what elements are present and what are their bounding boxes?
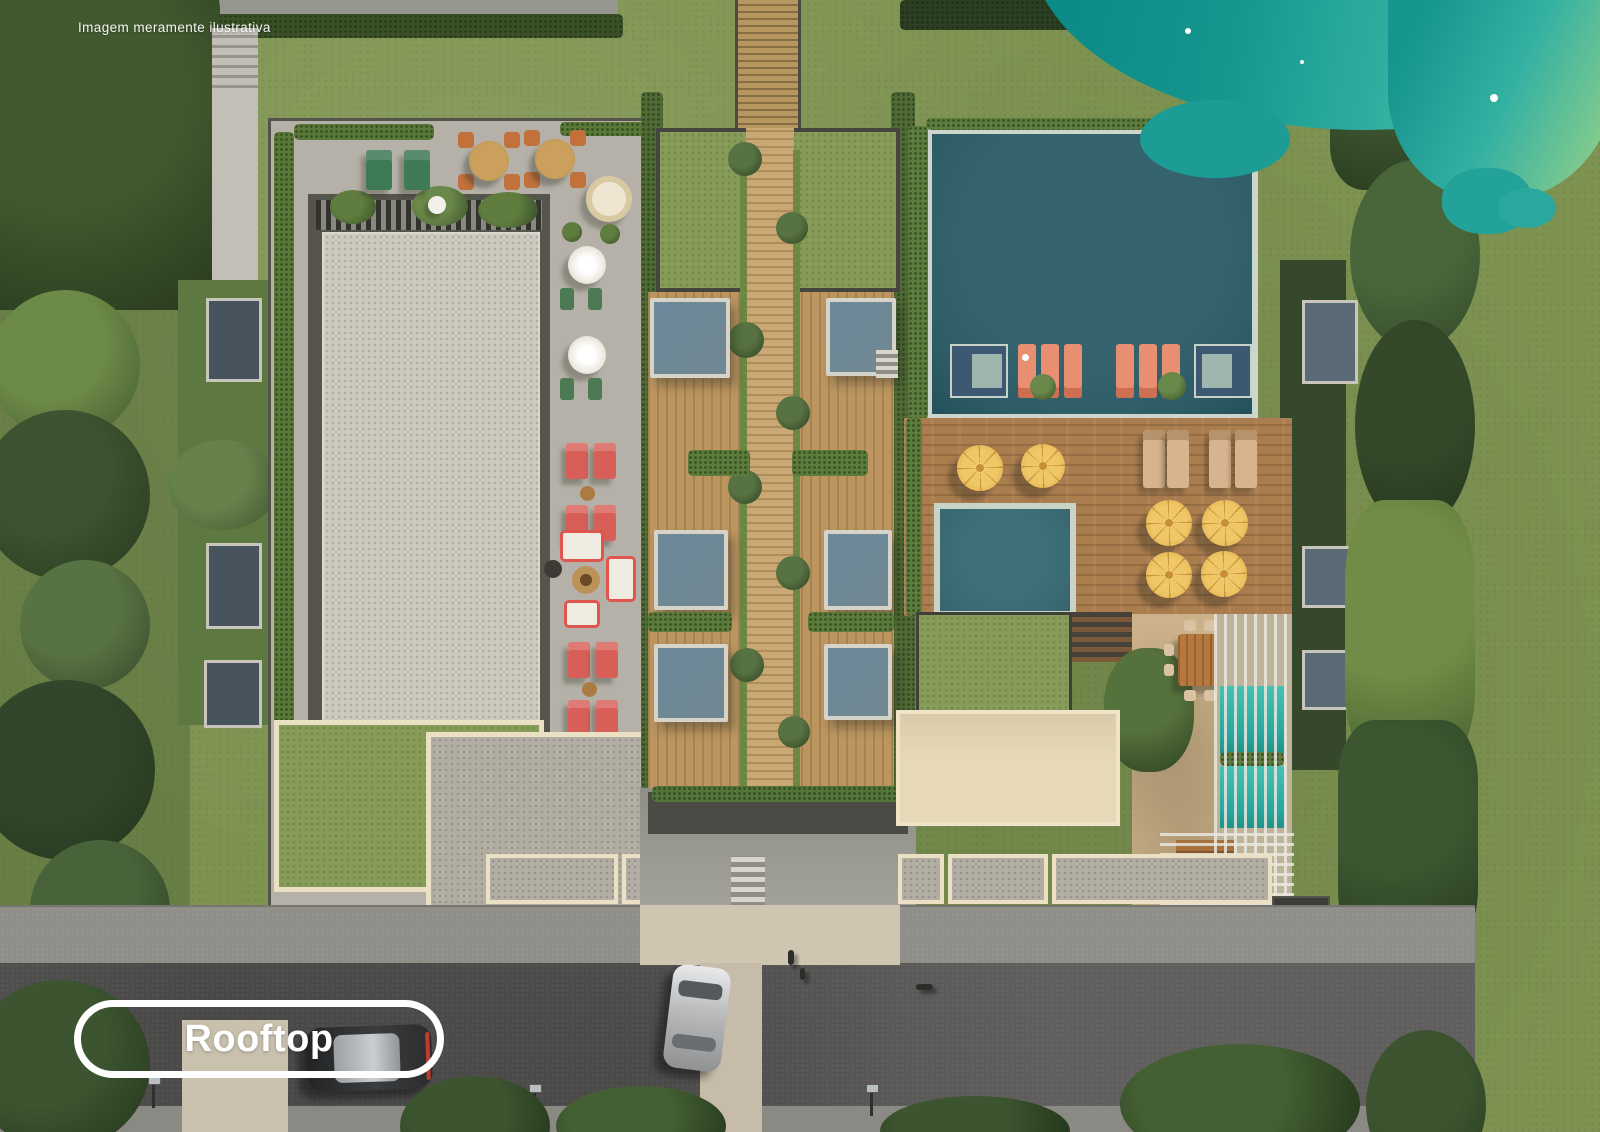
green-chair bbox=[588, 288, 602, 310]
skylight-panel bbox=[206, 543, 262, 629]
tan-lounger bbox=[1235, 430, 1257, 488]
green-chair bbox=[588, 378, 602, 400]
red-lounger bbox=[594, 443, 616, 479]
plunge-pool bbox=[940, 509, 1070, 611]
white-umbrella bbox=[568, 246, 606, 284]
unit-divider-hedge bbox=[808, 612, 894, 632]
walkway-palm bbox=[776, 212, 808, 244]
unit-plunge-daybed bbox=[650, 298, 730, 378]
tree-cluster bbox=[20, 560, 150, 690]
planter bbox=[562, 222, 582, 242]
tan-lounger bbox=[1143, 430, 1165, 488]
unit-steps bbox=[876, 350, 898, 378]
walkway-palm bbox=[778, 716, 810, 748]
pool-plant bbox=[1030, 374, 1056, 400]
in-pool-lounger bbox=[1139, 344, 1157, 398]
walkway-palm bbox=[776, 396, 810, 430]
deck-hedge bbox=[906, 418, 922, 616]
facade-panel bbox=[486, 854, 618, 904]
facade-panel bbox=[898, 854, 944, 904]
red-lounger bbox=[566, 443, 588, 479]
rooftop-marketing-image: Imagem meramente ilustrativa Rooftop bbox=[0, 0, 1600, 1132]
boardwalk bbox=[735, 0, 801, 132]
side-table bbox=[582, 682, 597, 697]
in-pool-lounge-deck bbox=[950, 344, 1008, 398]
entry-apron bbox=[640, 905, 900, 965]
dining-chair bbox=[1164, 644, 1174, 656]
green-chair bbox=[560, 378, 574, 400]
shrub bbox=[168, 440, 278, 530]
unit-plunge-daybed bbox=[824, 530, 892, 610]
unit-plunge-daybed bbox=[824, 644, 892, 720]
street-lamp bbox=[152, 1082, 155, 1108]
yellow-umbrella bbox=[1146, 552, 1192, 598]
ocean-drip bbox=[1498, 188, 1556, 228]
yellow-umbrella bbox=[1202, 500, 1248, 546]
dining-set bbox=[524, 130, 586, 188]
left-roof-hedge-top bbox=[294, 124, 434, 140]
white-umbrella bbox=[568, 336, 606, 374]
green-chair bbox=[560, 288, 574, 310]
dining-set bbox=[458, 132, 520, 190]
ocean-speck bbox=[1490, 94, 1498, 102]
unit-divider-hedge bbox=[648, 612, 732, 632]
facade-panel bbox=[948, 854, 1048, 904]
unit-divider-hedge bbox=[792, 450, 868, 476]
ocean-speck bbox=[1300, 60, 1304, 64]
entry-path bbox=[212, 28, 258, 306]
tree-cluster bbox=[0, 0, 220, 310]
pergola-vine bbox=[330, 190, 376, 224]
lounge-sofa bbox=[560, 530, 604, 562]
pedestrian bbox=[800, 968, 805, 980]
lounge-sofa bbox=[606, 556, 636, 602]
aerial-render bbox=[0, 0, 1600, 1132]
fire-pit-table bbox=[572, 566, 600, 594]
side-table bbox=[428, 196, 446, 214]
pedestrian bbox=[788, 950, 794, 965]
facade-panel bbox=[1052, 854, 1272, 904]
rooftop-label-pill[interactable]: Rooftop bbox=[74, 1000, 444, 1078]
in-pool-lounger bbox=[1116, 344, 1134, 398]
red-lounger bbox=[596, 642, 618, 678]
pergola-vine bbox=[478, 192, 538, 228]
side-table bbox=[544, 560, 562, 578]
ocean-lobe bbox=[1140, 100, 1290, 178]
pool-plant bbox=[1158, 372, 1186, 400]
lounge-sofa bbox=[564, 600, 600, 628]
unit-plunge-daybed bbox=[654, 530, 728, 610]
unit-plunge-daybed bbox=[654, 644, 728, 722]
yellow-umbrella bbox=[1021, 444, 1065, 488]
side-table bbox=[580, 486, 595, 501]
event-court bbox=[322, 232, 540, 724]
walkway-palm bbox=[776, 556, 810, 590]
yellow-umbrella bbox=[1146, 500, 1192, 546]
skylight-panel bbox=[1302, 300, 1358, 384]
green-lounger bbox=[366, 150, 392, 190]
skylight-panel bbox=[204, 660, 262, 728]
round-daybed bbox=[586, 176, 632, 222]
yellow-umbrella bbox=[1201, 551, 1247, 597]
red-lounger bbox=[568, 700, 590, 736]
tan-lounger bbox=[1209, 430, 1231, 488]
disclaimer-caption: Imagem meramente ilustrativa bbox=[78, 20, 271, 35]
walkway-palm bbox=[728, 322, 764, 358]
walkway-palm bbox=[730, 648, 764, 682]
pool-bird bbox=[1022, 354, 1029, 361]
green-lounger bbox=[404, 150, 430, 190]
red-lounger bbox=[568, 642, 590, 678]
entry-hedge bbox=[652, 786, 914, 802]
red-lounger bbox=[596, 700, 618, 736]
walkway-palm bbox=[728, 142, 762, 176]
dining-chair bbox=[1184, 690, 1196, 701]
in-pool-lounge-deck bbox=[1194, 344, 1252, 398]
terrace-stairs bbox=[1072, 612, 1132, 662]
dining-chair bbox=[1184, 620, 1196, 631]
in-pool-lounger bbox=[1064, 344, 1082, 398]
dining-chair bbox=[1164, 664, 1174, 676]
pool-hedge bbox=[908, 126, 928, 420]
tree-cluster bbox=[1355, 320, 1475, 530]
cream-roof-volume bbox=[896, 710, 1120, 826]
planter bbox=[600, 224, 620, 244]
skylight-panel bbox=[206, 298, 262, 382]
ocean-speck bbox=[1185, 28, 1191, 34]
cyclist bbox=[916, 984, 933, 990]
street-lamp bbox=[870, 1090, 873, 1116]
tan-lounger bbox=[1167, 430, 1189, 488]
unit-divider-hedge bbox=[688, 450, 750, 476]
yellow-umbrella bbox=[957, 445, 1003, 491]
